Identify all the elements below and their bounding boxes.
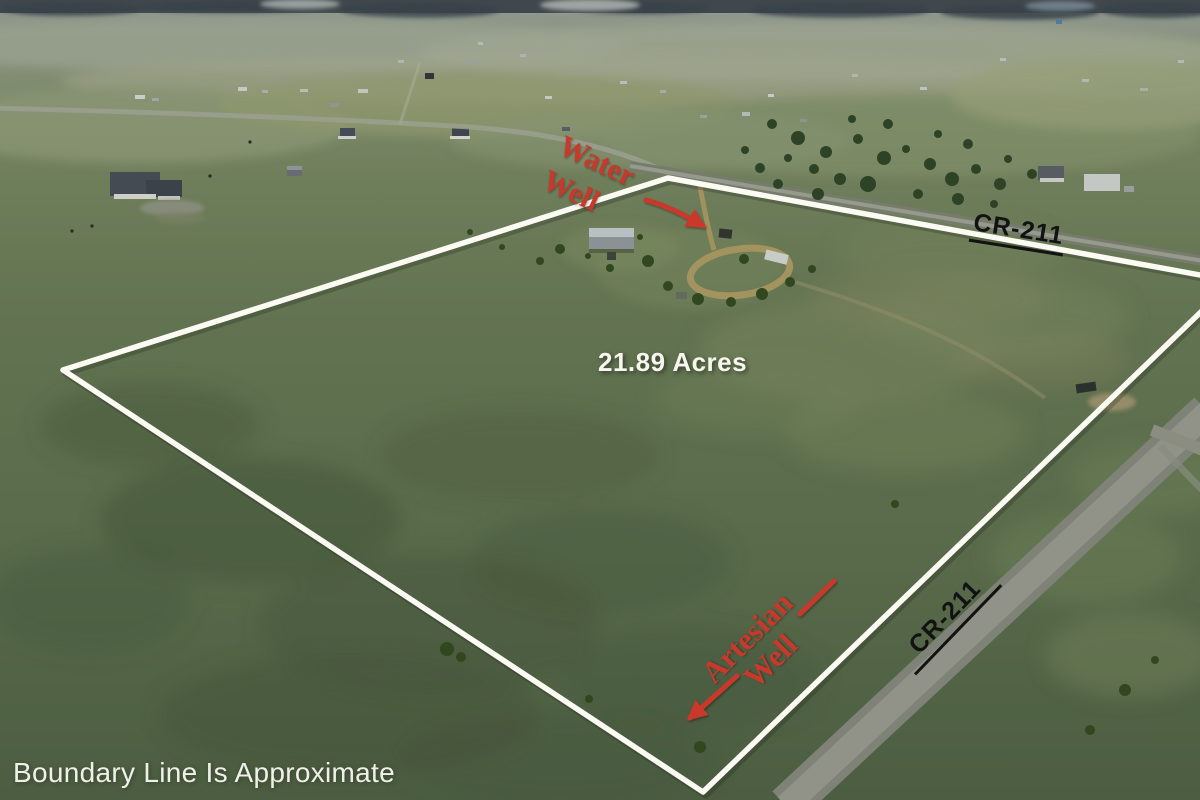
- boundary-shadow: [66, 181, 1200, 795]
- boundary-disclaimer-text: Boundary Line Is Approximate: [13, 757, 395, 789]
- aerial-property-photo: Water Well Artesian Well CR-211 CR-211 2…: [0, 0, 1200, 800]
- acreage-label: 21.89 Acres: [598, 347, 747, 378]
- annotation-overlay: [0, 0, 1200, 800]
- water-well-arrow-icon: [646, 200, 703, 226]
